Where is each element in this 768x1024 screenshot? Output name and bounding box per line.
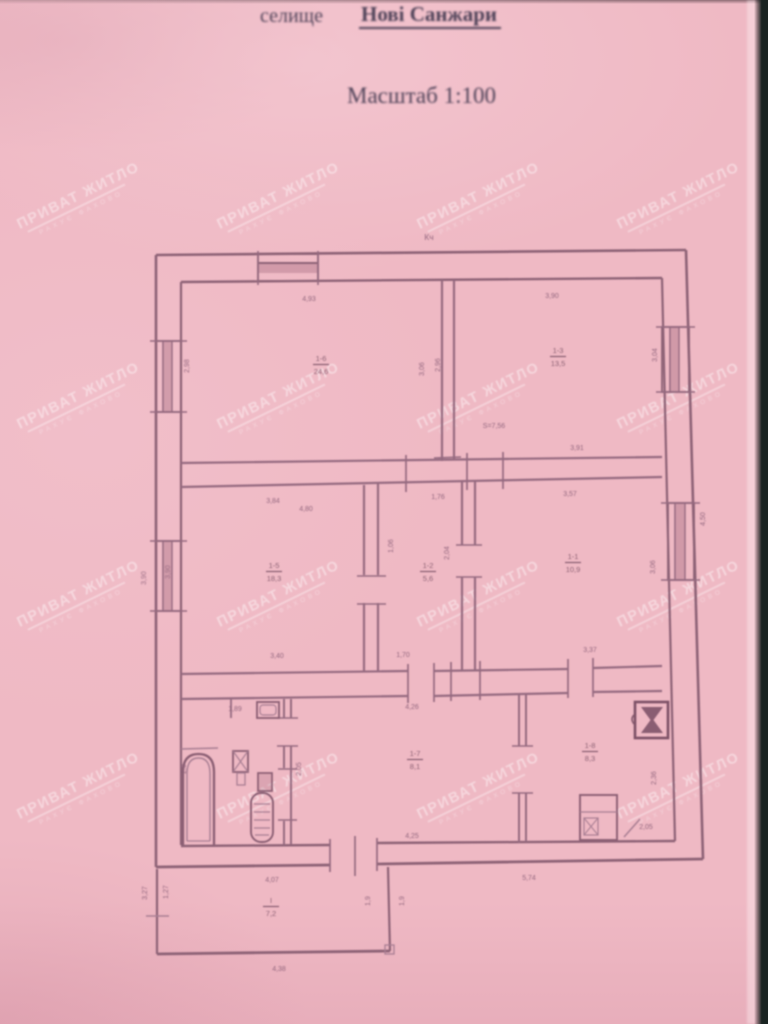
svg-text:5,74: 5,74 — [522, 875, 536, 882]
svg-text:3,57: 3,57 — [563, 491, 577, 498]
svg-text:3,37: 3,37 — [583, 647, 597, 654]
svg-text:2,0: 2,0 — [181, 764, 188, 774]
svg-text:4,07: 4,07 — [265, 877, 279, 884]
svg-text:2,05: 2,05 — [296, 762, 303, 776]
svg-text:13,5: 13,5 — [551, 359, 566, 368]
svg-text:1-3: 1-3 — [553, 346, 564, 355]
svg-text:3,06: 3,06 — [650, 560, 657, 574]
svg-text:1-8: 1-8 — [585, 741, 596, 750]
svg-text:1,27: 1,27 — [163, 885, 170, 899]
svg-text:3,90: 3,90 — [141, 571, 148, 585]
svg-text:1,06: 1,06 — [388, 539, 395, 553]
svg-text:4,25: 4,25 — [405, 833, 419, 840]
svg-text:S=7,56: S=7,56 — [483, 423, 505, 430]
svg-text:3,90: 3,90 — [165, 565, 172, 579]
svg-text:8,3: 8,3 — [585, 754, 595, 763]
svg-text:3,27: 3,27 — [142, 886, 149, 900]
svg-text:1,9: 1,9 — [365, 896, 372, 906]
svg-text:1,70: 1,70 — [396, 652, 410, 659]
svg-text:2,96: 2,96 — [435, 358, 442, 372]
svg-text:1-1: 1-1 — [568, 552, 579, 561]
svg-text:3,90: 3,90 — [545, 293, 559, 300]
svg-text:2,98: 2,98 — [184, 359, 191, 373]
svg-text:1-2: 1-2 — [423, 561, 434, 570]
svg-text:І: І — [270, 896, 272, 905]
svg-text:4,93: 4,93 — [302, 296, 316, 303]
svg-text:3,40: 3,40 — [270, 653, 284, 660]
svg-text:18,3: 18,3 — [267, 574, 282, 583]
svg-text:5,6: 5,6 — [423, 574, 433, 583]
svg-text:1,76: 1,76 — [431, 494, 445, 501]
svg-text:2,05: 2,05 — [639, 824, 653, 831]
svg-text:8,1: 8,1 — [410, 762, 420, 771]
svg-text:1,9: 1,9 — [399, 896, 406, 906]
svg-text:24,6: 24,6 — [314, 367, 329, 376]
svg-text:3,84: 3,84 — [266, 498, 280, 505]
svg-text:1,89: 1,89 — [228, 706, 242, 713]
svg-text:1-6: 1-6 — [316, 354, 327, 363]
svg-text:1-5: 1-5 — [269, 561, 280, 570]
svg-text:3,04: 3,04 — [652, 348, 659, 362]
svg-text:4,80: 4,80 — [299, 506, 313, 513]
svg-text:1-7: 1-7 — [410, 749, 421, 758]
svg-text:2,36: 2,36 — [651, 771, 658, 785]
svg-text:2,04: 2,04 — [444, 546, 451, 560]
svg-text:4,50: 4,50 — [700, 512, 707, 526]
svg-text:Кч: Кч — [424, 232, 433, 242]
svg-text:10,9: 10,9 — [566, 565, 581, 574]
svg-text:4,38: 4,38 — [272, 966, 286, 973]
svg-text:7,2: 7,2 — [266, 909, 276, 918]
svg-text:3,06: 3,06 — [419, 362, 426, 376]
svg-text:4,26: 4,26 — [405, 704, 419, 711]
svg-text:3,91: 3,91 — [570, 445, 584, 452]
